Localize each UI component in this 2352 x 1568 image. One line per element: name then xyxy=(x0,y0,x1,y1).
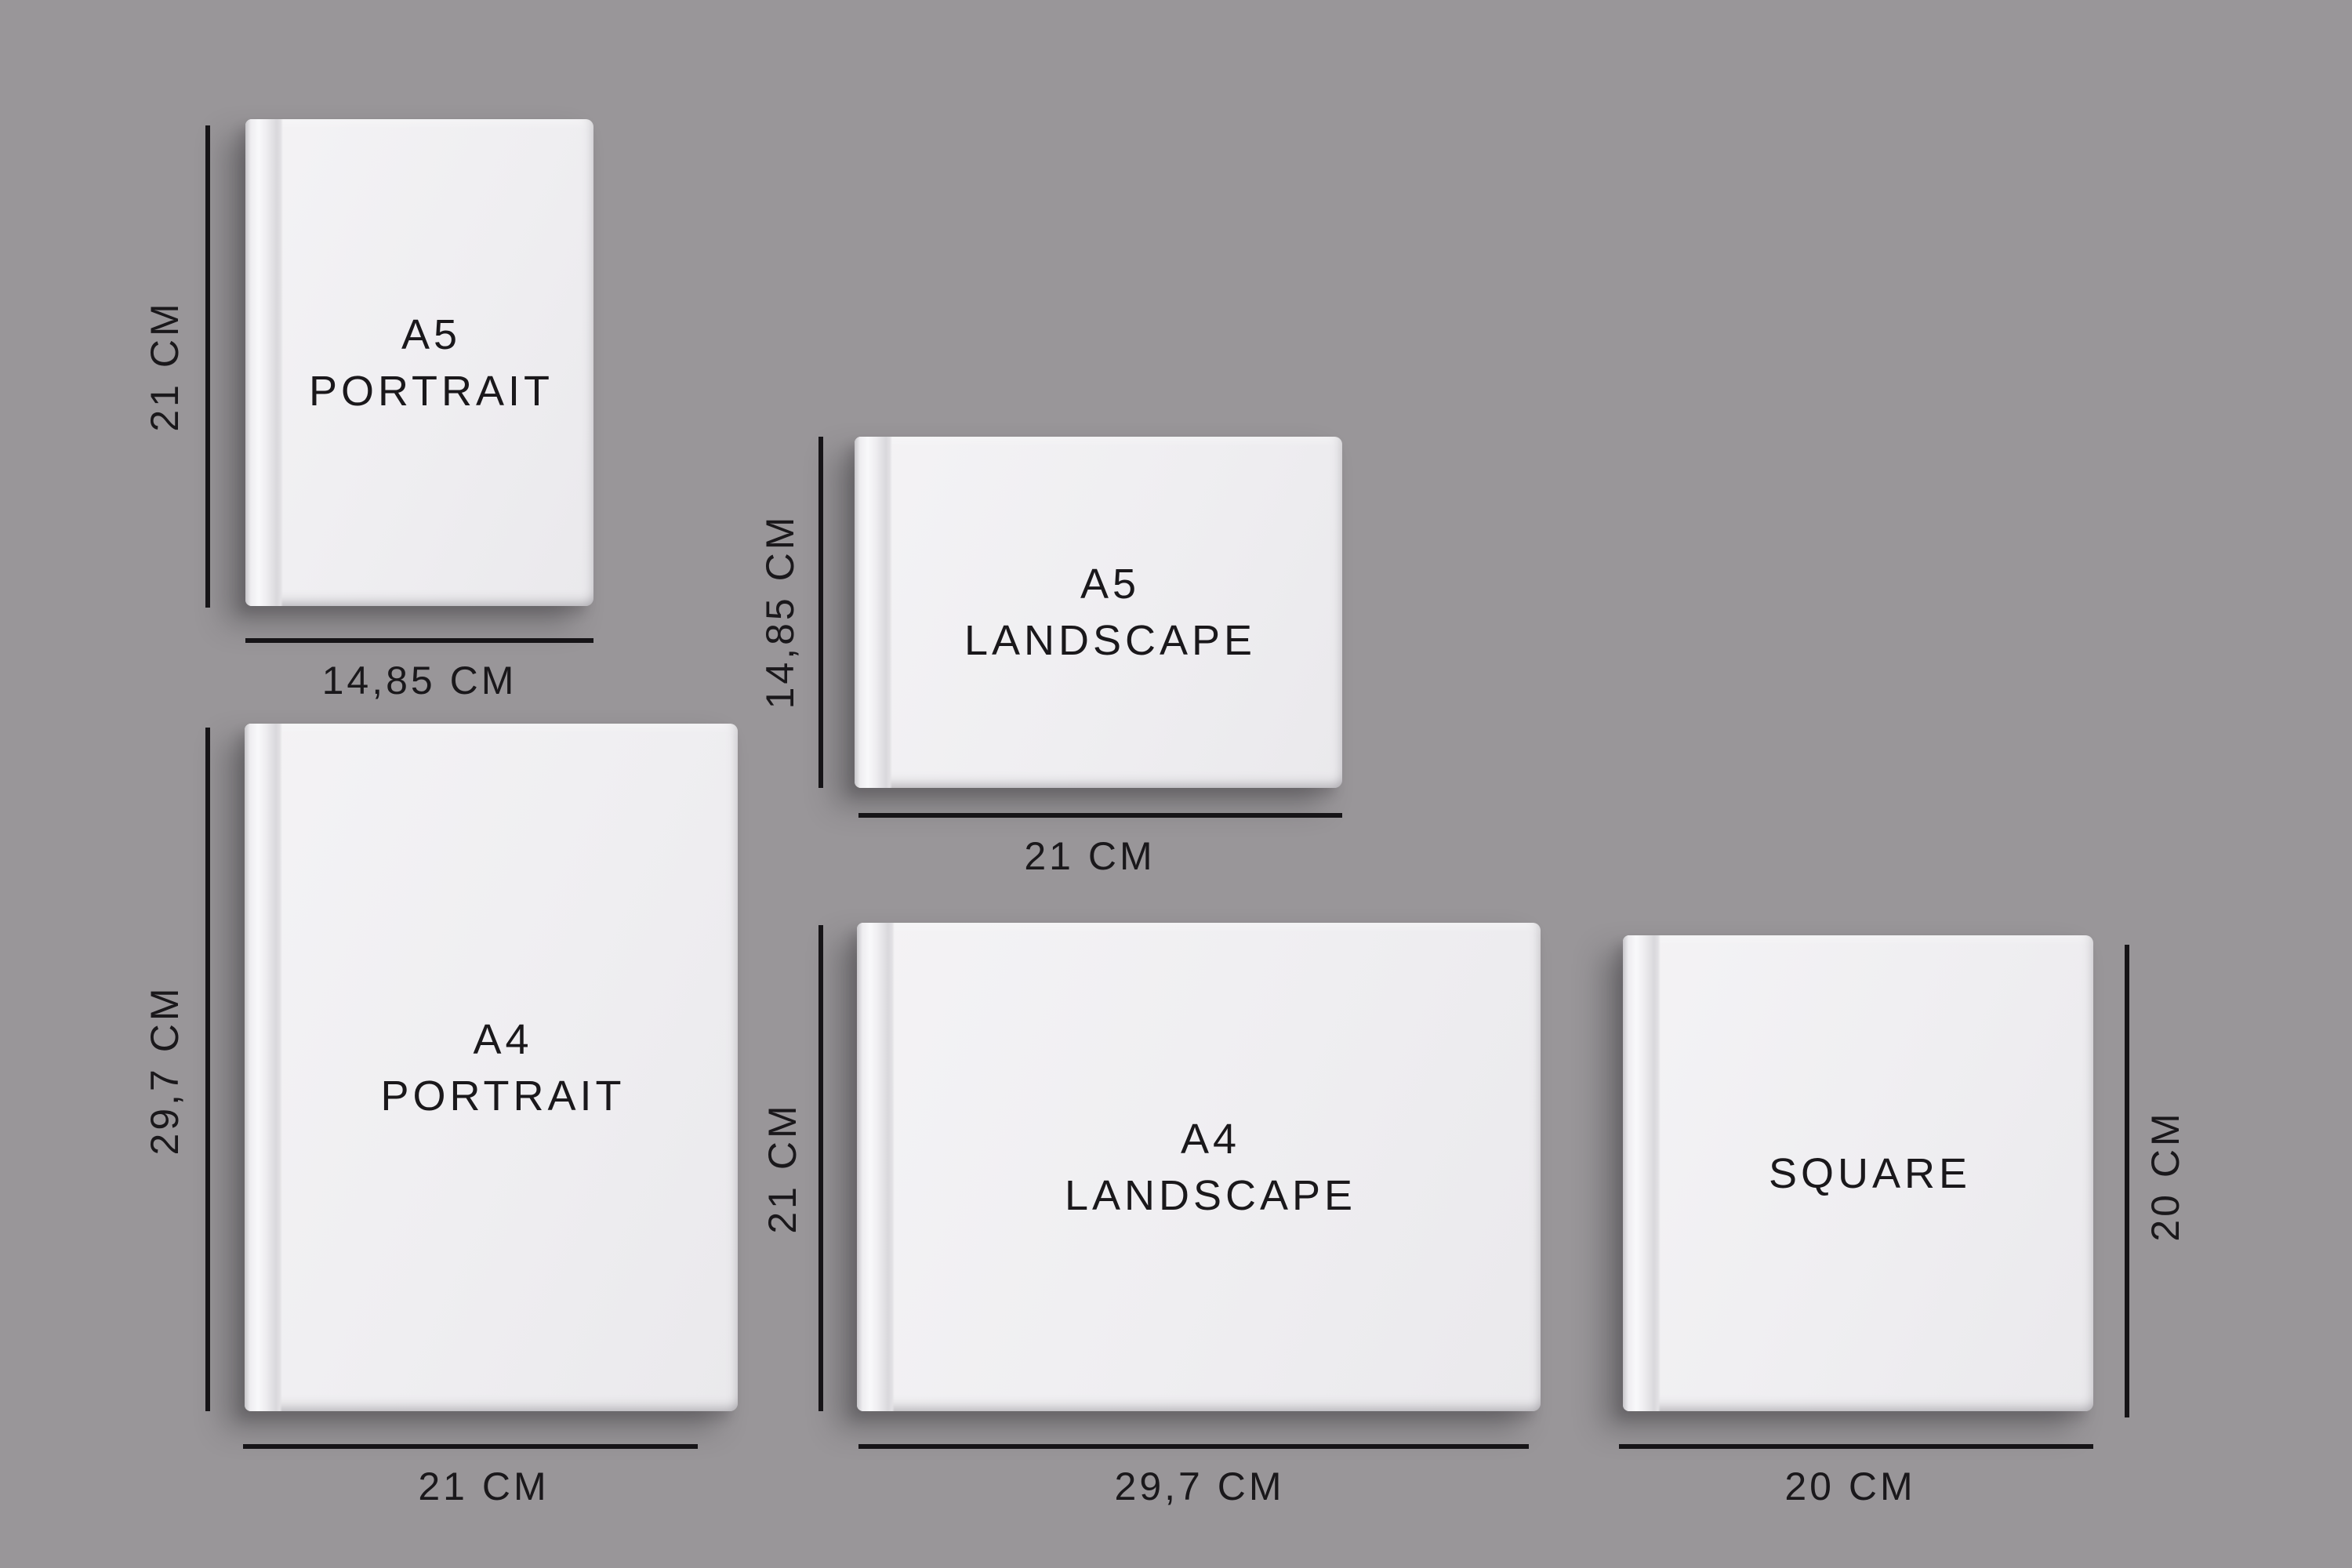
size-comparison-diagram: A5 PORTRAIT 21 CM 14,85 CM A5 LANDSCAPE … xyxy=(0,0,2352,1568)
square-height-line xyxy=(2125,945,2129,1417)
a5-portrait-height-label: 21 CM xyxy=(142,300,187,431)
a4-landscape-width-line xyxy=(858,1444,1529,1449)
book-square-label-line1: SQUARE xyxy=(1769,1145,1971,1202)
book-a5-landscape-spine xyxy=(855,437,892,788)
book-a4-landscape: A4 LANDSCAPE xyxy=(857,923,1541,1411)
a4-landscape-width-label: 29,7 CM xyxy=(1115,1464,1285,1509)
a5-landscape-width-label: 21 CM xyxy=(1024,833,1155,879)
book-a4-portrait-label-line2: PORTRAIT xyxy=(380,1068,625,1124)
square-height-label: 20 CM xyxy=(2143,1110,2188,1241)
a5-landscape-height-line xyxy=(818,437,823,788)
book-a5-portrait-label-line2: PORTRAIT xyxy=(309,363,554,419)
a4-landscape-height-line xyxy=(818,925,823,1411)
book-a4-landscape-label-line1: A4 xyxy=(1065,1111,1356,1167)
a4-portrait-width-label: 21 CM xyxy=(418,1464,549,1509)
book-a4-portrait-label: A4 PORTRAIT xyxy=(357,1011,625,1124)
book-a5-portrait: A5 PORTRAIT xyxy=(245,119,593,606)
a4-landscape-height-label: 21 CM xyxy=(760,1102,805,1233)
a5-portrait-width-line xyxy=(245,638,593,643)
book-a4-portrait-label-line1: A4 xyxy=(380,1011,625,1068)
book-a4-landscape-spine xyxy=(857,923,895,1411)
book-a5-portrait-label-line1: A5 xyxy=(309,307,554,363)
a4-portrait-width-line xyxy=(243,1444,698,1449)
a5-landscape-height-label: 14,85 CM xyxy=(757,514,803,710)
a4-portrait-height-label: 29,7 CM xyxy=(142,985,187,1156)
book-a5-portrait-label: A5 PORTRAIT xyxy=(285,307,554,419)
book-a5-landscape-label: A5 LANDSCAPE xyxy=(941,556,1256,669)
book-square-label: SQUARE xyxy=(1745,1145,1971,1202)
square-width-label: 20 CM xyxy=(1784,1464,1915,1509)
a4-portrait-height-line xyxy=(205,728,210,1411)
book-square: SQUARE xyxy=(1623,935,2093,1411)
a5-portrait-width-label: 14,85 CM xyxy=(322,658,517,703)
book-a4-landscape-label: A4 LANDSCAPE xyxy=(1041,1111,1356,1224)
book-a5-portrait-spine xyxy=(245,119,283,606)
book-square-spine xyxy=(1623,935,1661,1411)
book-a4-portrait: A4 PORTRAIT xyxy=(245,724,738,1411)
book-a5-landscape-label-line2: LANDSCAPE xyxy=(964,612,1256,669)
book-a4-portrait-spine xyxy=(245,724,282,1411)
a5-portrait-height-line xyxy=(205,125,210,608)
book-a4-landscape-label-line2: LANDSCAPE xyxy=(1065,1167,1356,1224)
book-a5-landscape-label-line1: A5 xyxy=(964,556,1256,612)
book-a5-landscape: A5 LANDSCAPE xyxy=(855,437,1342,788)
square-width-line xyxy=(1619,1444,2093,1449)
a5-landscape-width-line xyxy=(858,813,1342,818)
